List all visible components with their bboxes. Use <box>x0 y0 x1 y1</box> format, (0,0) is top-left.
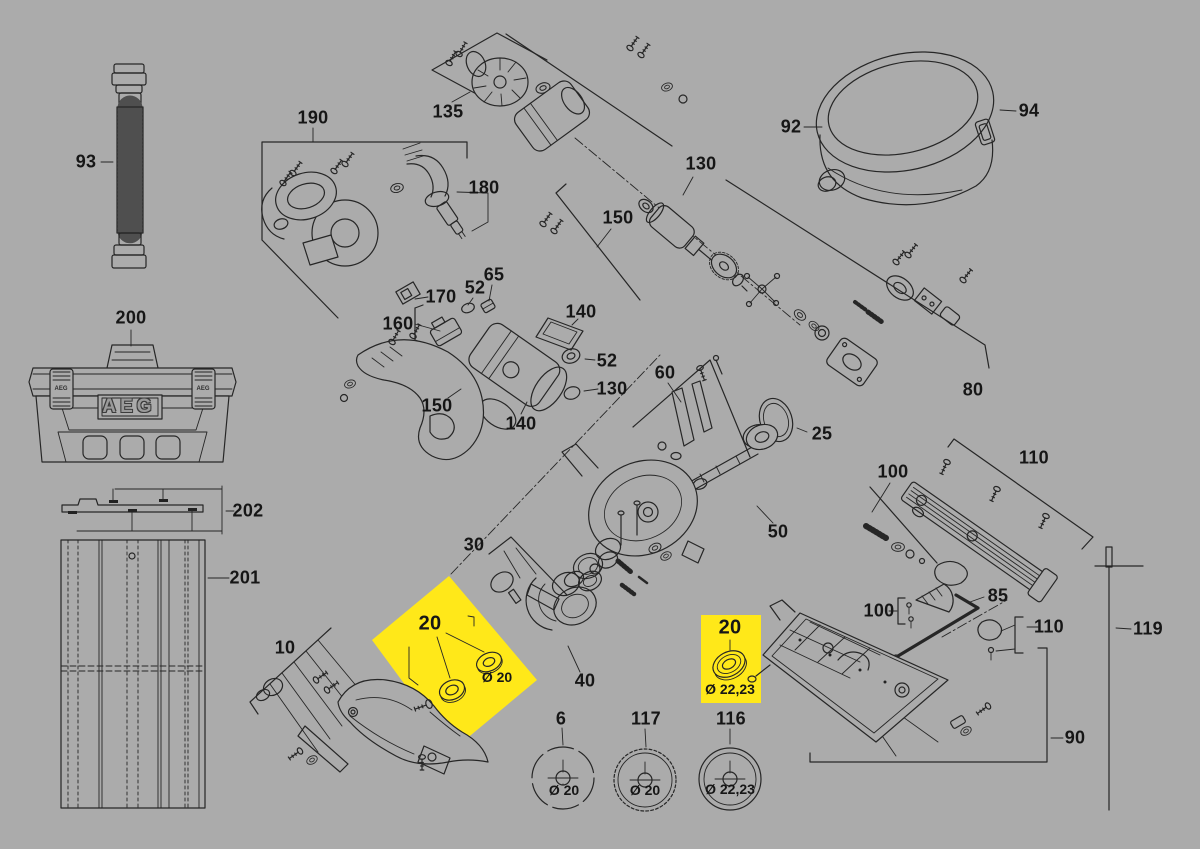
deflector-plate-140 <box>536 318 583 350</box>
saw-blade-116 <box>699 748 761 810</box>
saw-blade-6 <box>532 747 594 809</box>
handle-housing-150 <box>341 323 484 460</box>
hex-key-85 <box>893 595 978 661</box>
dust-container-92-94 <box>804 35 1005 205</box>
brush-set-170 <box>396 282 420 304</box>
armature-130 <box>636 197 829 340</box>
lever-set-60 <box>633 356 750 460</box>
stator-150 <box>511 35 687 300</box>
leader-lines <box>77 92 1131 747</box>
clamp-set-110 <box>978 617 1023 660</box>
ring-group-40 <box>526 541 673 632</box>
guide-rail-110 <box>898 439 1093 603</box>
motor-mount-80 <box>825 243 974 388</box>
fastener-group-100 <box>866 526 967 628</box>
saw-blade-117 <box>614 749 676 811</box>
depth-rod-119 <box>1095 547 1143 810</box>
parts-diagram-canvas: 93 200 202 201 190 135 180 130 150 92 94… <box>0 0 1200 849</box>
grommet-52-clip-65 <box>460 299 495 315</box>
blower-housing-190 <box>262 142 467 318</box>
carry-case-200 <box>29 345 236 462</box>
diagram-linework <box>0 0 1200 849</box>
case-panel-201 <box>61 540 205 808</box>
suction-hose-93 <box>112 64 146 268</box>
case-tray-202 <box>62 499 203 514</box>
